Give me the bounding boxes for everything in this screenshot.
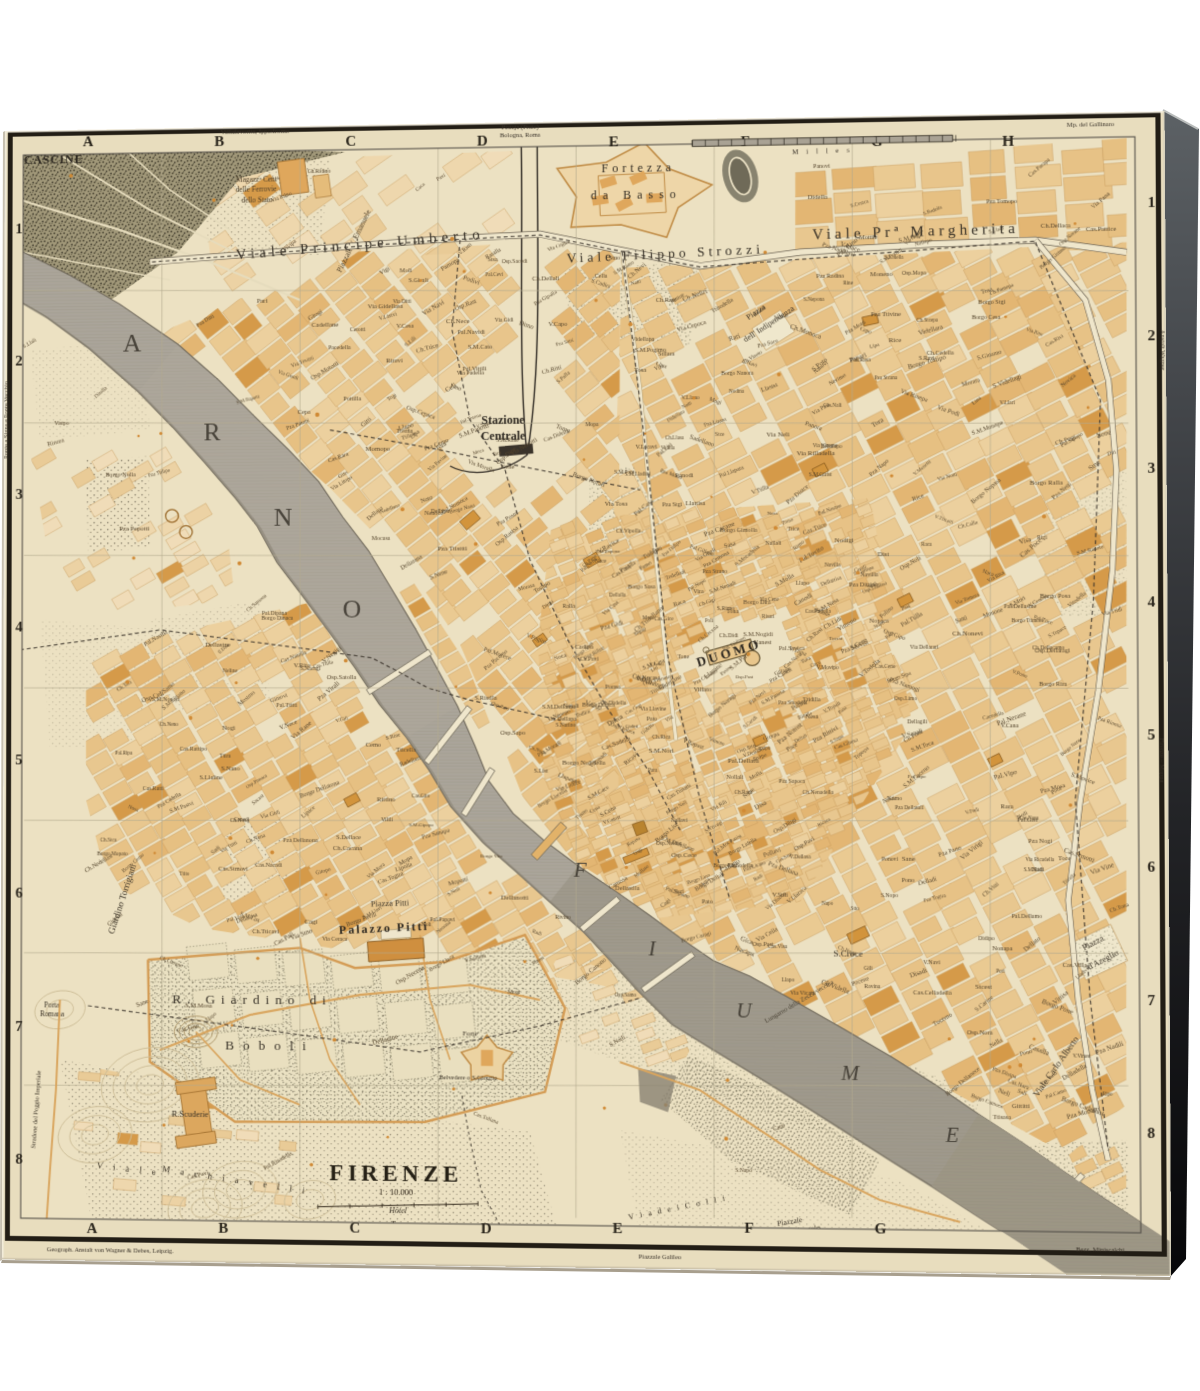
svg-text:Cas.Nali: Cas.Nali	[823, 402, 842, 408]
svg-text:A: A	[83, 134, 94, 150]
svg-text:Porta: Porta	[44, 1002, 60, 1010]
svg-text:Panovi: Panovi	[813, 164, 830, 170]
svg-text:Cepa: Cepa	[298, 410, 311, 416]
svg-text:Ch.Ridino: Ch.Ridino	[307, 169, 331, 175]
svg-text:Cas.Celladella: Cas.Celladella	[913, 990, 952, 998]
svg-text:Tosa: Tosa	[634, 367, 647, 374]
svg-text:5: 5	[1147, 727, 1155, 744]
svg-text:Nollali: Nollali	[726, 775, 744, 781]
svg-text:1 : 10.000: 1 : 10.000	[379, 1187, 413, 1197]
svg-text:Moneno: Moneno	[870, 271, 892, 279]
svg-text:Via Dellarari: Via Dellarari	[910, 645, 939, 651]
svg-text:Rigi: Rigi	[1037, 535, 1047, 541]
svg-text:I: I	[647, 937, 656, 960]
svg-text:C: C	[349, 1220, 360, 1237]
svg-text:Ponovi: Ponovi	[882, 856, 899, 862]
svg-text:Cas.Stmovi: Cas.Stmovi	[219, 865, 249, 872]
svg-text:G: G	[874, 1220, 886, 1237]
svg-text:6: 6	[1147, 860, 1155, 877]
svg-text:F: F	[572, 859, 587, 882]
svg-text:S.Girali: S.Girali	[409, 277, 429, 284]
svg-text:Para: Para	[648, 768, 658, 773]
svg-text:S.Nepona: S.Nepona	[804, 297, 825, 303]
svg-text:Pza Stgi: Pza Stgi	[662, 502, 682, 508]
svg-text:Rara: Rara	[1000, 804, 1013, 811]
svg-text:Nori: Nori	[674, 889, 684, 895]
svg-text:Borgo Ttimori: Borgo Ttimori	[1012, 618, 1044, 624]
svg-text:Pza Sapoca: Pza Sapoca	[779, 779, 806, 785]
svg-text:S.Napo: S.Napo	[735, 1168, 752, 1174]
svg-text:3: 3	[1148, 461, 1156, 478]
svg-text:Poli: Poli	[705, 619, 714, 624]
svg-text:Pal.Ttitti: Pal.Ttitti	[276, 702, 297, 708]
svg-text:dello Stato: dello Stato	[241, 196, 273, 205]
svg-text:Stazione: Stazione	[481, 414, 524, 428]
svg-text:Pza Stcana: Pza Stcana	[874, 376, 898, 381]
svg-text:Cas.Gito: Cas.Gito	[412, 793, 431, 799]
svg-text:S.Lidella: S.Lidella	[884, 256, 904, 261]
svg-text:Cenedi: Cenedi	[234, 817, 250, 823]
svg-text:V.Capo: V.Capo	[548, 321, 567, 328]
svg-text:Capapo: Capapo	[755, 746, 771, 751]
svg-text:Vira: Vira	[693, 589, 704, 595]
svg-text:Borgo Sasa: Borgo Sasa	[628, 585, 656, 591]
svg-text:C: C	[345, 134, 356, 150]
svg-text:Pal.Savica: Pal.Savica	[779, 646, 805, 652]
svg-text:Cas.Ratti: Cas.Ratti	[143, 786, 164, 792]
svg-text:Pori: Pori	[996, 969, 1005, 974]
svg-text:S.Rimo: S.Rimo	[717, 606, 735, 612]
svg-text:Pacedella: Pacedella	[328, 345, 351, 351]
svg-text:da Basso: da Basso	[591, 188, 682, 203]
svg-text:Moli: Moli	[400, 268, 413, 274]
svg-text:Villato: Villato	[694, 686, 712, 693]
svg-text:D: D	[481, 1220, 492, 1237]
svg-text:Boboli: Boboli	[225, 1037, 315, 1053]
svg-text:S.Croce: S.Croce	[833, 948, 862, 959]
svg-text:Borgo Dira: Borgo Dira	[743, 600, 771, 606]
svg-text:Osp.Samo: Osp.Samo	[615, 993, 637, 999]
svg-text:Pari: Pari	[257, 297, 268, 304]
svg-text:V.Licavi: V.Licavi	[635, 443, 657, 450]
svg-text:Pal.Navidi: Pal.Navidi	[457, 329, 485, 336]
svg-text:Cas.Villa: Cas.Villa	[1062, 961, 1087, 968]
svg-text:8: 8	[15, 1151, 22, 1167]
svg-text:V.Navi: V.Navi	[923, 960, 941, 966]
svg-text:E: E	[609, 134, 619, 151]
svg-text:Cas.Visa: Cas.Visa	[768, 944, 788, 950]
svg-text:E: E	[944, 1124, 959, 1147]
svg-text:Ch.Stca: Ch.Stca	[100, 838, 117, 844]
svg-text:Videllapa: Videllapa	[632, 336, 655, 342]
svg-text:Tocest: Tocest	[829, 637, 843, 642]
svg-text:8: 8	[1147, 1126, 1155, 1143]
svg-text:Osp.Cece: Osp.Cece	[671, 852, 696, 859]
svg-text:Nodina: Nodina	[729, 389, 745, 394]
svg-text:Cene: Cene	[501, 463, 515, 470]
svg-text:S.List: S.List	[534, 768, 549, 774]
svg-text:1: 1	[1148, 195, 1156, 212]
svg-text:Ralla: Ralla	[563, 604, 576, 610]
svg-text:Neline: Neline	[223, 668, 238, 674]
svg-text:7: 7	[1147, 993, 1155, 1010]
svg-text:Cagi: Cagi	[305, 918, 318, 925]
svg-text:Pza Radina: Pza Radina	[816, 274, 844, 281]
svg-text:S.Dellace: S.Dellace	[336, 835, 361, 842]
svg-text:Ch.Stcepa: Ch.Stcepa	[917, 318, 939, 323]
svg-text:Piazza Pitti: Piazza Pitti	[371, 898, 410, 908]
svg-text:Borgo Ralla: Borgo Ralla	[1030, 479, 1063, 487]
svg-text:M: M	[840, 1062, 860, 1085]
svg-text:A: A	[87, 1220, 98, 1237]
svg-text:Pal.Dellamo: Pal.Dellamo	[1011, 914, 1042, 920]
svg-text:R. Giardino di: R. Giardino di	[172, 991, 332, 1007]
svg-text:Toce: Toce	[1058, 856, 1071, 862]
svg-text:Ripo: Ripo	[1103, 1092, 1114, 1097]
svg-text:Osp.Mopa: Osp.Mopa	[902, 271, 927, 278]
svg-text:2: 2	[1148, 328, 1156, 345]
svg-text:Ch.Dellali: Ch.Dellali	[532, 275, 559, 283]
svg-text:V.Cesa: V.Cesa	[396, 324, 414, 330]
svg-text:Rice: Rice	[889, 337, 902, 344]
svg-text:V.Dellasa: V.Dellasa	[790, 854, 812, 860]
svg-text:Borgo Stgi: Borgo Stgi	[978, 300, 1006, 307]
svg-text:Gittitti: Gittitti	[1012, 1103, 1030, 1111]
svg-text:N: N	[274, 504, 293, 533]
svg-text:Cas.Pattice: Cas.Pattice	[1086, 226, 1116, 234]
svg-text:Osp.Nora: Osp.Nora	[967, 1029, 993, 1037]
svg-text:Didipo: Didipo	[978, 936, 994, 942]
svg-text:5: 5	[15, 753, 22, 769]
svg-text:S.M.Ridi: S.M.Ridi	[1024, 868, 1044, 873]
svg-text:S.M.Pora: S.M.Pora	[614, 469, 635, 475]
svg-text:Pato: Pato	[702, 899, 713, 905]
svg-text:Ttira: Ttira	[220, 753, 232, 759]
svg-text:Nosa: Nosa	[767, 512, 778, 517]
svg-text:Osp.Satolla: Osp.Satolla	[327, 674, 357, 681]
svg-text:Ttisasa: Ttisasa	[993, 1114, 1011, 1120]
svg-text:Didella: Didella	[808, 194, 828, 201]
svg-text:S.Narino: S.Narino	[556, 723, 576, 729]
svg-text:Villafavorita, Ippodromo: Villafavorita, Ippodromo	[221, 128, 290, 136]
svg-text:Via Tosa: Via Tosa	[605, 501, 628, 508]
svg-text:Pal.Papavi: Pal.Papavi	[430, 917, 456, 923]
svg-text:Ravina: Ravina	[864, 984, 881, 990]
svg-text:Via Ricadella: Via Ricadella	[1025, 858, 1055, 863]
svg-text:R: R	[203, 418, 220, 447]
svg-text:Ch.Dellaca: Ch.Dellaca	[1041, 222, 1071, 230]
svg-text:Ch.Rica: Ch.Rica	[652, 735, 671, 741]
svg-text:B: B	[218, 1220, 228, 1237]
svg-text:S.M.Gipopo: S.M.Gipopo	[409, 823, 434, 828]
svg-text:Via Rilladella: Via Rilladella	[796, 450, 834, 458]
svg-text:Hôtel: Hôtel	[388, 1205, 407, 1215]
svg-text:Stsa: Stsa	[487, 257, 498, 263]
svg-text:Belvedere o S.Giorgio: Belvedere o S.Giorgio	[439, 1075, 497, 1083]
svg-text:Cas.Nacadi: Cas.Nacadi	[255, 863, 282, 869]
svg-text:S.M.Dellamo: S.M.Dellamo	[542, 705, 576, 711]
svg-text:Via Gidellasa: Via Gidellasa	[368, 303, 403, 311]
svg-text:Via Neli: Via Neli	[766, 431, 789, 438]
svg-text:Forte: Forte	[463, 1031, 478, 1038]
svg-text:Llattisa: Llattisa	[685, 500, 705, 507]
svg-text:Ch.Llasa: Ch.Llasa	[665, 436, 684, 441]
svg-text:Anstalt Wagner: Anstalt Wagner	[1158, 330, 1166, 372]
svg-text:Pal.Dipana: Pal.Dipana	[262, 611, 287, 617]
svg-text:Borgo Posa: Borgo Posa	[1040, 592, 1071, 599]
svg-text:Dellanotti: Dellanotti	[501, 895, 529, 902]
svg-text:Pza Dellanona: Pza Dellanona	[283, 838, 318, 844]
svg-text:S.M.Cato: S.M.Cato	[468, 343, 493, 350]
svg-text:4: 4	[15, 620, 23, 636]
svg-text:Sane: Sane	[902, 856, 915, 863]
svg-text:Mocasa: Mocasa	[372, 535, 391, 541]
svg-text:Riravi: Riravi	[386, 357, 403, 364]
svg-text:Ch.Nonevi: Ch.Nonevi	[952, 630, 983, 637]
svg-text:S.Nopo: S.Nopo	[881, 893, 899, 899]
svg-text:Cas.Gice: Cas.Gice	[654, 616, 674, 622]
svg-text:Porasa: Porasa	[605, 685, 621, 691]
svg-text:R.Scuderie: R.Scuderie	[172, 1109, 209, 1119]
svg-text:Ch.Nenadella: Ch.Nenadella	[802, 790, 834, 796]
svg-text:Momopo: Momopo	[365, 446, 390, 453]
svg-text:Firenze – Mappa: Firenze – Mappa	[1158, 738, 1166, 783]
svg-text:Cemo: Cemo	[366, 741, 381, 748]
svg-text:Vilili: Vilili	[381, 817, 393, 823]
svg-text:A: A	[123, 330, 142, 359]
svg-text:Pza Nogi: Pza Nogi	[1028, 839, 1052, 845]
svg-text:Rine: Rine	[843, 282, 854, 287]
svg-text:Romana: Romana	[40, 1011, 65, 1019]
svg-text:S.Nacagi: S.Nacagi	[300, 666, 321, 672]
svg-text:Via Gidi: Via Gidi	[495, 318, 514, 324]
svg-text:O: O	[343, 596, 362, 625]
svg-text:Cadellane: Cadellane	[312, 322, 339, 329]
svg-text:Llapo: Llapo	[796, 580, 810, 586]
svg-text:Ch.Neno: Ch.Neno	[159, 722, 178, 728]
svg-text:V.Pono: V.Pono	[649, 662, 664, 667]
svg-text:Cas.Nasa: Cas.Nasa	[1019, 816, 1039, 821]
svg-text:V.Llari: V.Llari	[1000, 400, 1016, 406]
svg-text:Cetotti: Cetotti	[350, 327, 366, 333]
svg-text:Via Llavine: Via Llavine	[640, 706, 667, 712]
svg-text:Borgo Cesa: Borgo Cesa	[972, 314, 1001, 321]
svg-text:Stto: Stto	[851, 907, 860, 912]
svg-text:Pza Dellasali: Pza Dellasali	[895, 805, 924, 811]
svg-text:2: 2	[15, 354, 22, 370]
svg-text:Nopaca: Nopaca	[869, 619, 889, 625]
svg-text:Pal.Vittili: Pal.Vittili	[462, 366, 486, 372]
svg-text:Stcest: Stcest	[975, 984, 992, 991]
svg-text:Pato: Pato	[647, 716, 658, 722]
svg-text:Ch.Didella: Ch.Didella	[600, 700, 626, 706]
svg-text:Ch.Dellacamo: Ch.Dellacamo	[1032, 645, 1065, 651]
svg-text:Mogi: Mogi	[508, 989, 521, 995]
svg-text:Cas.Rattipo: Cas.Rattipo	[180, 746, 207, 752]
svg-text:Pistoja (Prato): Pistoja (Prato)	[502, 124, 539, 132]
svg-text:Ttice: Ttice	[788, 526, 800, 532]
svg-text:Vistpo: Vistpo	[54, 421, 69, 427]
svg-text:Pono: Pono	[902, 878, 915, 884]
svg-text:Nallali: Nallali	[765, 541, 782, 547]
svg-text:FIRENZE: FIRENZE	[329, 1159, 462, 1186]
svg-text:Llapo: Llapo	[781, 978, 795, 984]
svg-text:Nogi: Nogi	[222, 725, 235, 732]
svg-text:Stce: Stce	[715, 432, 725, 438]
svg-text:Tticella: Tticella	[396, 746, 416, 753]
svg-text:D: D	[477, 134, 488, 150]
svg-text:Vidilla: Vidilla	[661, 446, 676, 451]
svg-text:Napo: Napo	[822, 901, 834, 907]
svg-text:V.Llano: V.Llano	[681, 395, 699, 401]
svg-text:Rivino: Rivino	[555, 915, 571, 921]
svg-text:Borgo Vito: Borgo Vito	[480, 855, 503, 860]
svg-text:Borgo Gimolla: Borgo Gimolla	[720, 528, 758, 534]
svg-text:Centrale: Centrale	[481, 430, 526, 444]
svg-text:Cella: Cella	[595, 273, 608, 279]
svg-text:Nodigi: Nodigi	[834, 537, 853, 544]
svg-text:Pottilla: Pottilla	[343, 397, 361, 403]
svg-text:Ch.Cacana: Ch.Cacana	[333, 845, 362, 852]
svg-text:Borgo Nolla: Borgo Nolla	[106, 472, 136, 478]
svg-text:Ch.Nece: Ch.Nece	[446, 318, 470, 325]
svg-text:Dist: Dist	[878, 551, 890, 558]
svg-text:Ch.Rast: Ch.Rast	[656, 297, 677, 304]
svg-text:Fortezza: Fortezza	[601, 161, 675, 175]
svg-text:4: 4	[1148, 594, 1157, 611]
svg-text:Ttito: Ttito	[179, 871, 189, 877]
svg-text:S.M.Nopori: S.M.Nopori	[152, 697, 180, 703]
svg-text:Osp.Sacedi: Osp.Sacedi	[502, 258, 528, 264]
svg-text:Cas.Ceno: Cas.Ceno	[875, 664, 896, 670]
svg-text:Pza Ttivine: Pza Ttivine	[871, 310, 901, 318]
svg-text:Navilla: Navilla	[824, 562, 841, 568]
svg-text:S.M.Nori: S.M.Nori	[649, 747, 674, 754]
svg-text:Bologna, Roma: Bologna, Roma	[500, 132, 541, 140]
svg-text:S.Nano: S.Nano	[221, 765, 240, 772]
svg-text:3: 3	[15, 487, 22, 503]
svg-text:Ch.Vipolla: Ch.Vipolla	[616, 528, 641, 534]
svg-text:1: 1	[15, 221, 22, 237]
svg-text:V.Vinost: V.Vinost	[1073, 1055, 1092, 1060]
svg-text:Pza Stpo: Pza Stpo	[908, 775, 927, 780]
svg-text:Mp. del Gallinaro: Mp. del Gallinaro	[1067, 121, 1115, 129]
svg-text:Bezz. Miniscalchi: Bezz. Miniscalchi	[1076, 1247, 1125, 1255]
svg-text:Osp.Sapo: Osp.Sapo	[500, 730, 525, 737]
svg-text:Magazzᵒ Centˡᵉ: Magazzᵒ Centˡᵉ	[236, 176, 280, 185]
svg-text:Giditti: Giditti	[625, 724, 639, 729]
svg-text:Dellagili: Dellagili	[907, 719, 928, 725]
svg-text:6: 6	[15, 886, 22, 902]
svg-text:Ponte a Signa e Ponte Vecchio: Ponte a Signa e Ponte Vecchio	[3, 381, 10, 458]
svg-text:S.M.Pogimo: S.M.Pogimo	[635, 347, 666, 353]
svg-text:Piazzale Galileo: Piazzale Galileo	[639, 1253, 682, 1261]
svg-text:Pal.Ripa: Pal.Ripa	[115, 750, 133, 756]
svg-text:F: F	[744, 1220, 753, 1237]
svg-text:Via Vinemo: Via Vinemo	[813, 444, 839, 449]
svg-text:Risari: Risari	[762, 614, 775, 620]
svg-text:Osp.Limo: Osp.Limo	[894, 696, 917, 702]
svg-text:E: E	[612, 1220, 622, 1237]
svg-text:Borgo Rira: Borgo Rira	[1039, 682, 1067, 688]
svg-text:Pza Popotti: Pza Popotti	[119, 526, 149, 533]
svg-text:Rittino: Rittino	[377, 796, 396, 803]
svg-text:Dellalla: Dellalla	[609, 593, 626, 599]
svg-text:S.M.Girist: S.M.Girist	[809, 472, 833, 478]
svg-text:S.Llaline: S.Llaline	[199, 774, 222, 781]
svg-text:Ch.Didi: Ch.Didi	[719, 633, 739, 639]
svg-text:Gili: Gili	[864, 965, 873, 971]
svg-text:S.M.Papona: S.M.Papona	[596, 550, 621, 555]
svg-text:Tone: Tone	[677, 654, 689, 660]
svg-text:delle Ferrovie: delle Ferrovie	[236, 186, 277, 195]
svg-text:Via Ceraca: Via Ceraca	[322, 937, 348, 943]
svg-text:Nonapa: Nonapa	[992, 946, 1013, 953]
svg-text:Borgo Nanora: Borgo Nanora	[721, 371, 754, 378]
svg-text:S.Nocasa: S.Nocasa	[637, 675, 660, 681]
svg-text:Cas.Padella: Cas.Padella	[805, 609, 831, 615]
svg-text:Pza Strano: Pza Strano	[702, 569, 727, 575]
svg-text:U: U	[736, 999, 753, 1022]
svg-text:Pal.Cevi: Pal.Cevi	[485, 272, 503, 278]
svg-text:Pza Ttisttti: Pza Ttisttti	[438, 546, 468, 553]
svg-text:Mopa: Mopa	[585, 422, 599, 428]
svg-text:Pza Tomopo: Pza Tomopo	[986, 199, 1017, 206]
svg-text:H: H	[1002, 134, 1015, 151]
svg-text:Navilla: Navilla	[860, 573, 878, 579]
svg-text:7: 7	[15, 1019, 22, 1035]
svg-text:Raca: Raca	[921, 542, 933, 548]
svg-text:Osp.Past: Osp.Past	[735, 676, 753, 681]
svg-text:Ch.Tticavi: Ch.Tticavi	[252, 928, 279, 935]
